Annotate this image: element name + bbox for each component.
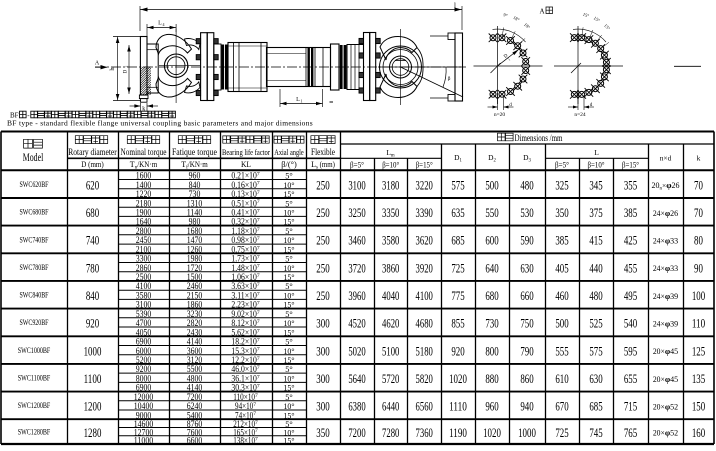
svg-text:6560: 6560 — [416, 400, 433, 414]
svg-text:SWC840BF: SWC840BF — [20, 290, 49, 300]
svg-text:855: 855 — [451, 317, 464, 331]
svg-text:495: 495 — [624, 289, 637, 303]
svg-text:6380: 6380 — [348, 400, 365, 414]
svg-text:300: 300 — [316, 317, 329, 331]
svg-text:Model: Model — [23, 152, 44, 164]
svg-text:790: 790 — [520, 344, 533, 358]
svg-text:250: 250 — [316, 289, 329, 303]
svg-text:880: 880 — [485, 372, 498, 386]
svg-text:765: 765 — [624, 426, 637, 440]
svg-text:β=10°: β=10° — [588, 160, 605, 169]
svg-text:1020: 1020 — [449, 372, 467, 386]
svg-text:250: 250 — [316, 206, 329, 220]
svg-text:150: 150 — [692, 400, 705, 414]
svg-text:480: 480 — [589, 289, 602, 303]
svg-text:250: 250 — [316, 178, 329, 192]
svg-text:D (mm): D (mm) — [81, 160, 104, 169]
svg-text:β: β — [448, 76, 451, 82]
svg-text:n=24: n=24 — [574, 112, 586, 118]
svg-text:4520: 4520 — [348, 317, 365, 331]
svg-text:440: 440 — [589, 261, 602, 275]
svg-text:325: 325 — [555, 178, 568, 192]
svg-text:k: k — [697, 153, 701, 162]
svg-text:920: 920 — [451, 344, 464, 358]
svg-text:345: 345 — [589, 178, 602, 192]
svg-text:3860: 3860 — [382, 261, 399, 275]
svg-text:6600: 6600 — [187, 437, 203, 446]
svg-text:750: 750 — [520, 317, 533, 331]
svg-text:630: 630 — [589, 372, 602, 386]
svg-text:480: 480 — [520, 178, 533, 192]
svg-text:840: 840 — [86, 289, 99, 303]
svg-text:7360: 7360 — [416, 426, 433, 440]
svg-text:A: A — [95, 61, 100, 67]
svg-text:20×φ52: 20×φ52 — [653, 428, 678, 438]
svg-text:500: 500 — [555, 317, 568, 331]
svg-text:Tf/KN·m: Tf/KN·m — [181, 160, 208, 170]
svg-text:500: 500 — [485, 178, 498, 192]
svg-text:A: A — [539, 8, 544, 16]
svg-text:Fatique torque: Fatique torque — [172, 148, 217, 158]
svg-text:24×φ39: 24×φ39 — [653, 291, 678, 301]
svg-text:780: 780 — [86, 261, 99, 275]
svg-text:SWC1200BF: SWC1200BF — [18, 400, 51, 410]
svg-text:680: 680 — [86, 206, 99, 220]
svg-text:300: 300 — [316, 344, 329, 358]
svg-text:385: 385 — [624, 206, 637, 220]
svg-text:5820: 5820 — [416, 372, 433, 386]
svg-text:385: 385 — [555, 234, 568, 248]
svg-text:5100: 5100 — [382, 344, 399, 358]
svg-text:590: 590 — [520, 234, 533, 248]
svg-text:680: 680 — [485, 289, 498, 303]
svg-text:920: 920 — [86, 317, 99, 331]
svg-text:740: 740 — [86, 234, 99, 248]
svg-text:6440: 6440 — [382, 400, 399, 414]
svg-text:SWC620BF: SWC620BF — [20, 179, 49, 189]
svg-text:3220: 3220 — [416, 178, 433, 192]
svg-text:3100: 3100 — [348, 178, 365, 192]
svg-text:KL: KL — [241, 160, 251, 169]
svg-text:Ⅱ: Ⅱ — [329, 101, 335, 103]
svg-text:1000: 1000 — [84, 344, 102, 358]
svg-text:460: 460 — [555, 289, 568, 303]
svg-text:3350: 3350 — [382, 206, 399, 220]
svg-text:4620: 4620 — [382, 317, 399, 331]
svg-text:630: 630 — [520, 261, 533, 275]
svg-text:685: 685 — [589, 400, 602, 414]
svg-text:1110: 1110 — [449, 400, 467, 414]
svg-text:SWC1000BF: SWC1000BF — [18, 345, 51, 355]
svg-text:635: 635 — [451, 206, 464, 220]
svg-text:4680: 4680 — [416, 317, 433, 331]
svg-text:BF type - standard flexible fl: BF type - standard flexible flange unive… — [7, 119, 313, 128]
svg-text:960: 960 — [485, 400, 498, 414]
svg-text:SWC680BF: SWC680BF — [20, 207, 49, 217]
svg-text:Ls (mm): Ls (mm) — [311, 160, 335, 170]
svg-text:3460: 3460 — [348, 234, 365, 248]
svg-text:Axial angle: Axial angle — [274, 148, 304, 157]
svg-text:l: l — [454, 2, 456, 10]
svg-text:SWC920BF: SWC920BF — [20, 317, 49, 327]
svg-text:660: 660 — [520, 289, 533, 303]
svg-text:90: 90 — [694, 261, 703, 275]
svg-text:1000: 1000 — [518, 426, 536, 440]
svg-text:SWC740BF: SWC740BF — [20, 234, 49, 244]
svg-text:24×φ26: 24×φ26 — [653, 208, 678, 218]
svg-text:3250: 3250 — [348, 206, 365, 220]
svg-text:4100: 4100 — [416, 289, 433, 303]
svg-text:7200: 7200 — [348, 426, 365, 440]
svg-text:575: 575 — [451, 178, 464, 192]
svg-text:3620: 3620 — [416, 234, 433, 248]
svg-text:745: 745 — [589, 426, 602, 440]
svg-text:860: 860 — [520, 372, 533, 386]
svg-text:715: 715 — [624, 400, 637, 414]
svg-text:100: 100 — [692, 289, 705, 303]
svg-text:β=5°: β=5° — [350, 160, 364, 169]
svg-text:β/(°): β/(°) — [281, 160, 297, 169]
svg-text:250: 250 — [316, 234, 329, 248]
svg-text:3180: 3180 — [382, 178, 399, 192]
svg-text:1: 1 — [301, 99, 303, 104]
svg-text:Tn/KN·m: Tn/KN·m — [130, 160, 158, 170]
svg-text:5640: 5640 — [348, 372, 365, 386]
svg-text:20n×φ26: 20n×φ26 — [651, 180, 679, 191]
svg-text:355: 355 — [624, 178, 637, 192]
svg-text:620: 620 — [86, 178, 99, 192]
svg-text:725: 725 — [555, 426, 568, 440]
svg-text:11000: 11000 — [134, 437, 154, 446]
svg-text:1100: 1100 — [84, 372, 102, 386]
svg-text:300: 300 — [316, 372, 329, 386]
svg-text:685: 685 — [451, 234, 464, 248]
svg-text:138×107: 138×107 — [233, 437, 258, 447]
svg-text:20×φ45: 20×φ45 — [653, 374, 678, 384]
svg-text:595: 595 — [624, 344, 637, 358]
svg-text:550: 550 — [485, 206, 498, 220]
svg-text:730: 730 — [485, 317, 498, 331]
svg-text:160: 160 — [692, 426, 705, 440]
svg-text:80: 80 — [694, 234, 703, 248]
svg-text:425: 425 — [624, 234, 637, 248]
svg-text:4: 4 — [163, 22, 165, 27]
svg-text:670: 670 — [555, 400, 568, 414]
svg-text:1200: 1200 — [84, 400, 102, 414]
svg-text:3580: 3580 — [382, 234, 399, 248]
svg-text:70: 70 — [694, 206, 703, 220]
svg-text:β=15°: β=15° — [416, 160, 433, 169]
svg-text:3720: 3720 — [348, 261, 365, 275]
svg-text:135: 135 — [692, 372, 705, 386]
svg-text:540: 540 — [624, 317, 637, 331]
svg-text:3960: 3960 — [348, 289, 365, 303]
svg-text:20×φ45: 20×φ45 — [653, 346, 678, 356]
svg-text:725: 725 — [451, 261, 464, 275]
svg-text:n×d: n×d — [660, 153, 672, 162]
svg-text:24×φ33: 24×φ33 — [653, 263, 678, 273]
svg-text:24×φ33: 24×φ33 — [653, 236, 678, 246]
svg-text:D: D — [123, 69, 128, 73]
svg-text:610: 610 — [555, 372, 568, 386]
svg-text:Dimensions /mm: Dimensions /mm — [515, 134, 563, 144]
svg-text:3920: 3920 — [416, 261, 433, 275]
svg-text:415: 415 — [589, 234, 602, 248]
svg-text:405: 405 — [555, 261, 568, 275]
svg-text:β=15°: β=15° — [622, 160, 639, 169]
svg-text:β=5°: β=5° — [555, 160, 569, 169]
svg-text:525: 525 — [589, 317, 602, 331]
svg-text:β=10°: β=10° — [382, 160, 399, 169]
svg-text:375: 375 — [589, 206, 602, 220]
svg-text:1280: 1280 — [84, 426, 102, 440]
svg-text:1190: 1190 — [449, 426, 467, 440]
svg-text:5720: 5720 — [382, 372, 399, 386]
svg-text:350: 350 — [316, 426, 329, 440]
svg-text:575: 575 — [589, 344, 602, 358]
svg-text:SWC1280BF: SWC1280BF — [18, 426, 51, 436]
svg-text:530: 530 — [520, 206, 533, 220]
svg-text:Flexible: Flexible — [311, 148, 335, 158]
svg-text:940: 940 — [520, 400, 533, 414]
svg-text:300: 300 — [316, 400, 329, 414]
svg-text:70: 70 — [694, 178, 703, 192]
svg-text:640: 640 — [485, 261, 498, 275]
svg-text:455: 455 — [624, 261, 637, 275]
svg-text:20×φ52: 20×φ52 — [653, 401, 678, 411]
svg-text:SWC780BF: SWC780BF — [20, 262, 49, 272]
svg-text:5020: 5020 — [348, 344, 365, 358]
svg-text:Rotary diameter: Rotary diameter — [68, 148, 117, 158]
svg-text:1020: 1020 — [483, 426, 501, 440]
svg-text:800: 800 — [485, 344, 498, 358]
svg-text:600: 600 — [485, 234, 498, 248]
svg-text:7280: 7280 — [382, 426, 399, 440]
svg-text:125: 125 — [692, 344, 705, 358]
svg-text:15°: 15° — [284, 436, 295, 446]
svg-text:3390: 3390 — [416, 206, 433, 220]
svg-text:n=20: n=20 — [494, 112, 506, 118]
svg-text:555: 555 — [555, 344, 568, 358]
svg-text:Nominal torque: Nominal torque — [121, 148, 167, 158]
svg-text:655: 655 — [624, 372, 637, 386]
svg-text:775: 775 — [451, 289, 464, 303]
svg-text:Bearing life factor: Bearing life factor — [222, 148, 270, 157]
svg-text:350: 350 — [555, 206, 568, 220]
svg-text:2: 2 — [125, 65, 129, 67]
svg-text:24×φ39: 24×φ39 — [653, 318, 678, 328]
svg-text:4040: 4040 — [382, 289, 399, 303]
svg-text:L: L — [594, 148, 599, 157]
svg-text:SWC1100BF: SWC1100BF — [18, 373, 51, 383]
svg-text:5180: 5180 — [416, 344, 433, 358]
svg-text:250: 250 — [316, 261, 329, 275]
svg-text:110: 110 — [692, 317, 705, 331]
